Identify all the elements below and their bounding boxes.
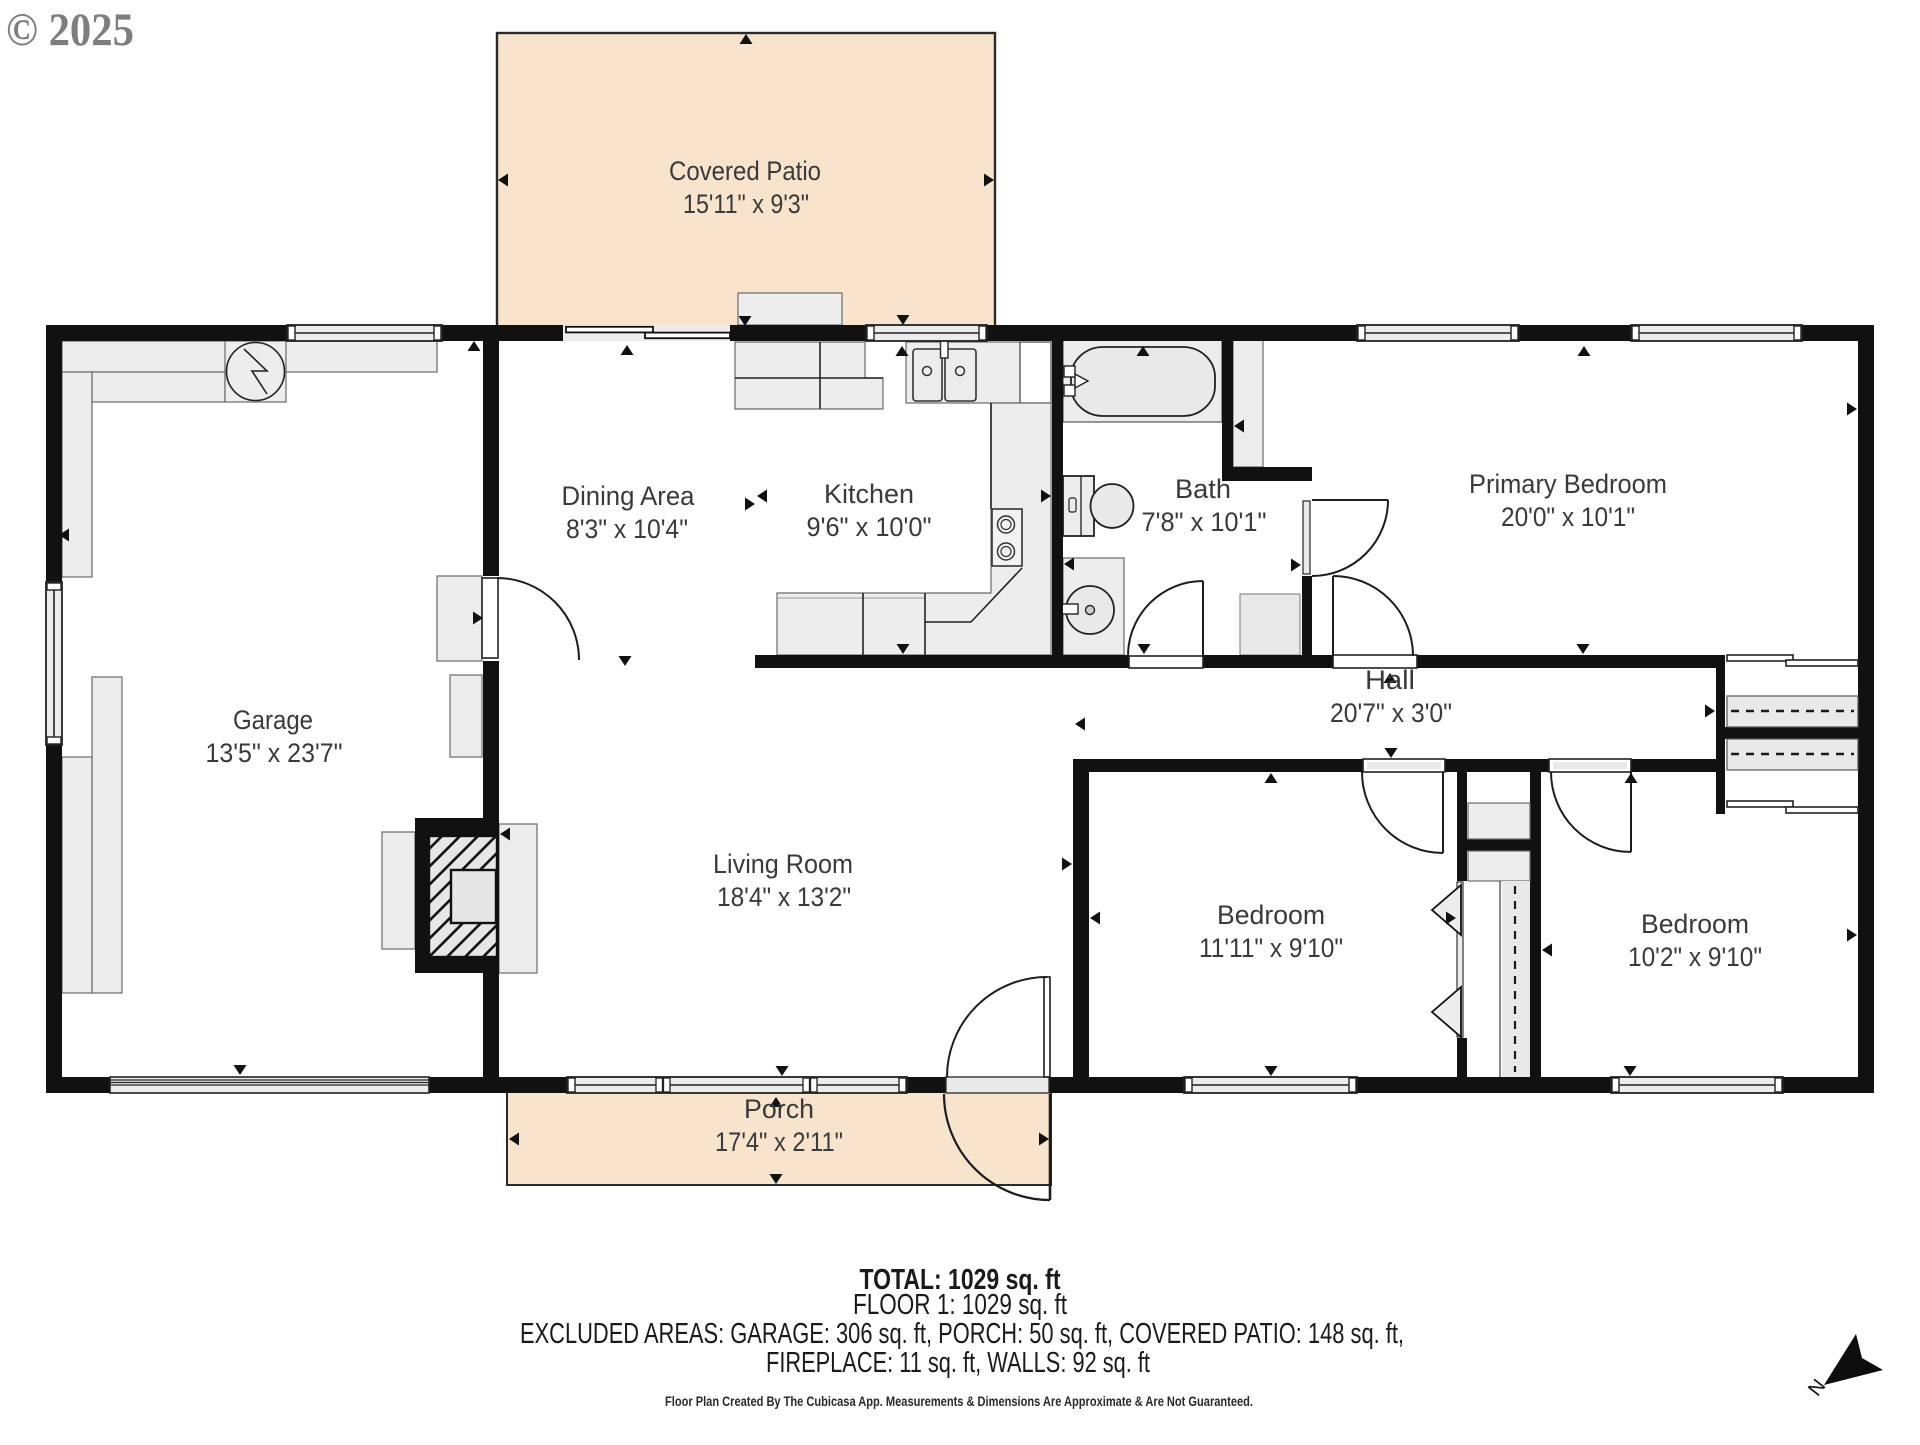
svg-text:Bedroom: Bedroom — [1641, 909, 1749, 939]
svg-text:20'7" x 3'0": 20'7" x 3'0" — [1330, 698, 1452, 728]
svg-text:Kitchen: Kitchen — [824, 479, 914, 509]
svg-text:10'2" x 9'10": 10'2" x 9'10" — [1628, 942, 1762, 972]
svg-text:Bedroom: Bedroom — [1217, 900, 1325, 930]
svg-text:Bath: Bath — [1175, 474, 1231, 504]
svg-text:Floor Plan Created By The Cubi: Floor Plan Created By The Cubicasa App. … — [665, 1394, 1253, 1409]
svg-text:© 2025: © 2025 — [6, 4, 134, 56]
svg-text:Living Room: Living Room — [713, 849, 853, 879]
svg-text:7'8" x 10'1": 7'8" x 10'1" — [1142, 507, 1267, 537]
svg-text:Porch: Porch — [744, 1094, 814, 1124]
svg-text:FLOOR 1: 1029 sq. ft: FLOOR 1: 1029 sq. ft — [853, 1289, 1067, 1321]
svg-text:11'11" x 9'10": 11'11" x 9'10" — [1199, 933, 1343, 963]
svg-text:Garage: Garage — [233, 705, 313, 735]
svg-text:18'4" x 13'2": 18'4" x 13'2" — [717, 882, 851, 912]
svg-text:17'4" x 2'11": 17'4" x 2'11" — [715, 1127, 843, 1157]
svg-text:8'3" x 10'4": 8'3" x 10'4" — [566, 514, 688, 544]
svg-text:EXCLUDED AREAS: GARAGE: 306 sq: EXCLUDED AREAS: GARAGE: 306 sq. ft, PORC… — [520, 1318, 1404, 1350]
svg-text:9'6" x 10'0": 9'6" x 10'0" — [807, 512, 932, 542]
svg-text:Primary Bedroom: Primary Bedroom — [1469, 469, 1667, 499]
svg-text:FIREPLACE: 11 sq. ft, WALLS: 9: FIREPLACE: 11 sq. ft, WALLS: 92 sq. ft — [766, 1347, 1150, 1379]
svg-text:Hall: Hall — [1365, 665, 1415, 695]
svg-text:20'0" x 10'1": 20'0" x 10'1" — [1501, 502, 1635, 532]
svg-text:Dining Area: Dining Area — [562, 481, 695, 511]
svg-text:Covered Patio: Covered Patio — [669, 156, 821, 186]
svg-text:15'11" x 9'3": 15'11" x 9'3" — [683, 189, 809, 219]
svg-text:13'5" x 23'7": 13'5" x 23'7" — [206, 738, 343, 768]
